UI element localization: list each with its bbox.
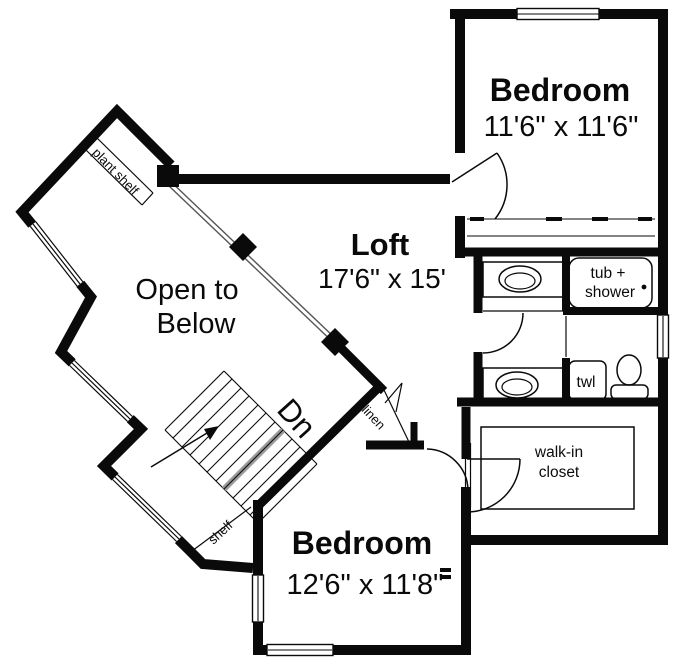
lower-bedroom-dimensions: 12'6" x 11'8" — [287, 569, 444, 601]
linen-front-line — [384, 390, 409, 442]
shower-head-dot — [642, 285, 647, 290]
stair-down-arrow — [151, 426, 219, 467]
lower-bedroom-name: Bedroom — [292, 525, 432, 561]
walk-in-closet-label-line1: walk-in — [534, 444, 583, 461]
upper-bedroom-dimensions: 11'6" x 11'6" — [484, 111, 639, 143]
diagonal-window-1 — [30, 222, 83, 286]
walk-in-closet-door — [467, 459, 520, 512]
loft-dimensions: 17'6" x 15' — [318, 263, 446, 294]
diagonal-window-3 — [113, 475, 182, 542]
railing-post-diamond — [229, 233, 257, 261]
towel-label: twl — [577, 374, 596, 391]
staircase — [151, 371, 317, 523]
tub-shower-label-line2: shower — [585, 284, 635, 301]
open-to-below-line2: Below — [157, 308, 237, 340]
bedroom-diagonal-wall — [256, 386, 380, 508]
plant-shelf-label: plant shelf — [90, 145, 143, 198]
bath1-vanity — [483, 262, 563, 297]
loft-name: Loft — [351, 227, 410, 262]
floor-plan: Bedroom 11'6" x 11'6" Loft 17'6" x 15' O… — [0, 0, 685, 664]
labels: Bedroom 11'6" x 11'6" Loft 17'6" x 15' O… — [90, 72, 639, 601]
upper-bedroom-closet — [467, 219, 655, 236]
toilet — [611, 355, 648, 399]
upper-bedroom-door — [452, 153, 507, 219]
tub-shower-label-line1: tub + — [591, 265, 626, 282]
doors — [427, 153, 523, 512]
walk-in-closet-label-line2: closet — [539, 464, 580, 481]
upper-bedroom-name: Bedroom — [490, 72, 630, 108]
floor-plan-svg: Bedroom 11'6" x 11'6" Loft 17'6" x 15' O… — [0, 0, 685, 664]
open-to-below-line1: Open to — [135, 274, 238, 306]
bath2-vanity — [483, 368, 563, 402]
linen-wall — [341, 348, 384, 391]
bath1-door — [483, 313, 523, 353]
diagonal-window-2 — [70, 361, 133, 422]
